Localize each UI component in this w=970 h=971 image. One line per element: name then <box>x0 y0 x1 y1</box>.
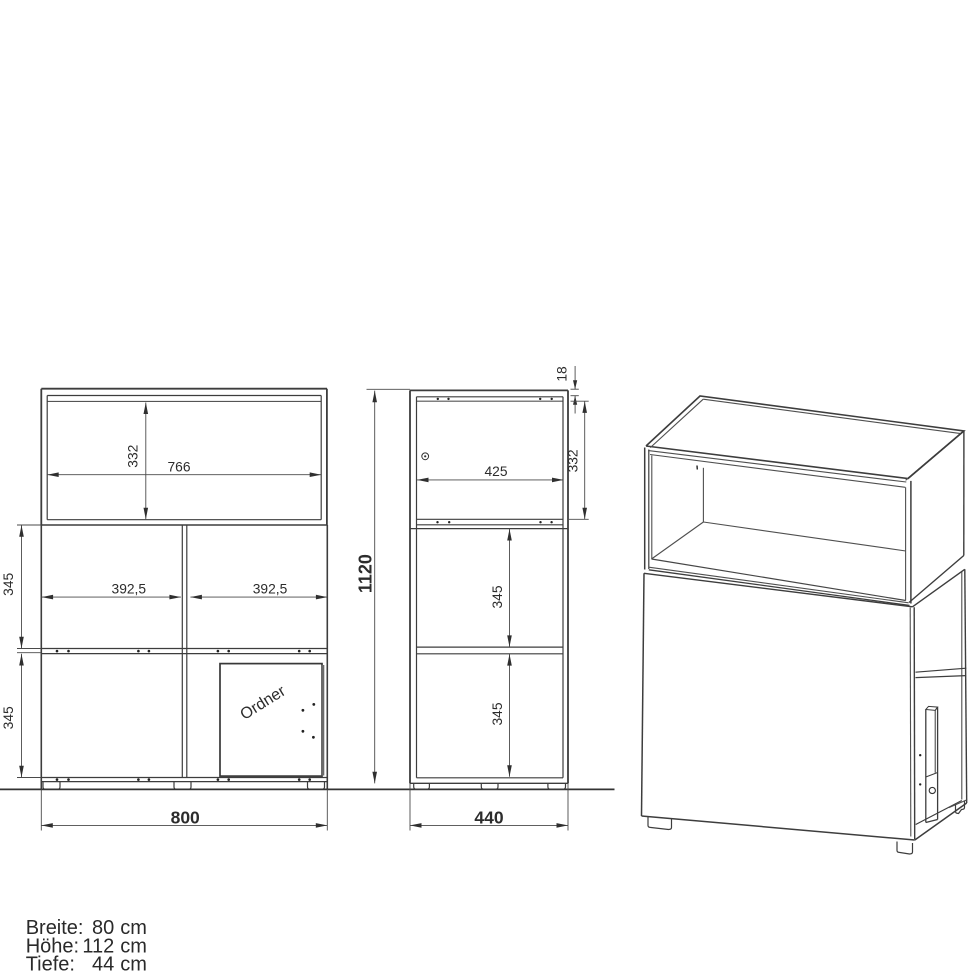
svg-text:766: 766 <box>167 460 190 475</box>
svg-text:18: 18 <box>555 366 570 382</box>
svg-text:Ordner: Ordner <box>237 682 289 723</box>
svg-text:345: 345 <box>490 702 505 725</box>
svg-text:392,5: 392,5 <box>253 582 288 597</box>
svg-text:1120: 1120 <box>355 554 375 593</box>
svg-text:Tiefe:: Tiefe: <box>26 953 75 971</box>
svg-text:392,5: 392,5 <box>112 582 147 597</box>
svg-text:345: 345 <box>490 585 505 608</box>
svg-text:332: 332 <box>126 445 141 468</box>
svg-text:332: 332 <box>566 449 581 472</box>
svg-text:cm: cm <box>120 953 147 971</box>
svg-text:425: 425 <box>484 464 507 479</box>
svg-text:345: 345 <box>1 706 16 729</box>
svg-text:800: 800 <box>171 807 200 827</box>
svg-text:44: 44 <box>92 953 114 971</box>
svg-text:345: 345 <box>1 572 16 595</box>
svg-text:440: 440 <box>474 807 503 827</box>
